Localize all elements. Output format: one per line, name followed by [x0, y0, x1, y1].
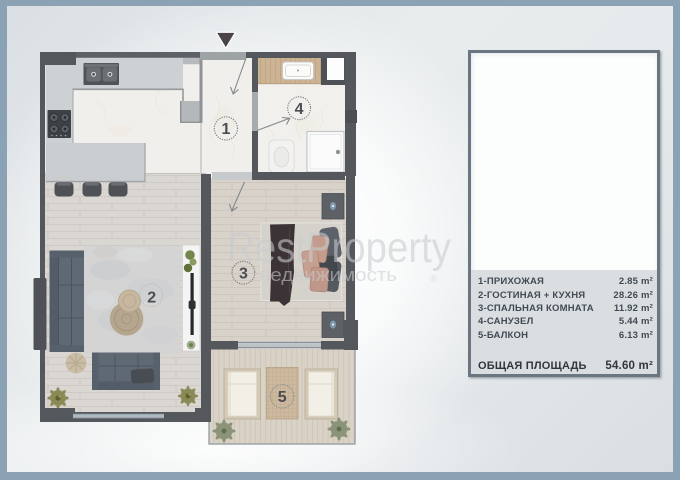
svg-text:2: 2	[147, 290, 156, 307]
svg-text:недвижимость: недвижимость	[259, 264, 397, 285]
svg-text:®: ®	[430, 274, 438, 285]
svg-text:4: 4	[295, 101, 304, 118]
svg-text:1: 1	[221, 121, 230, 138]
svg-text:5: 5	[278, 389, 287, 406]
